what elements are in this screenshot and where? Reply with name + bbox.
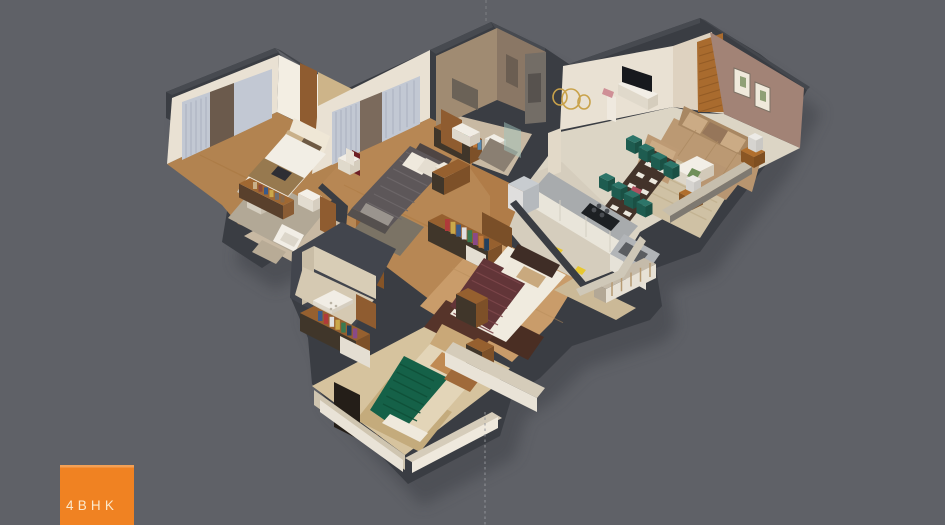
svg-text:4BHK: 4BHK: [66, 498, 118, 513]
